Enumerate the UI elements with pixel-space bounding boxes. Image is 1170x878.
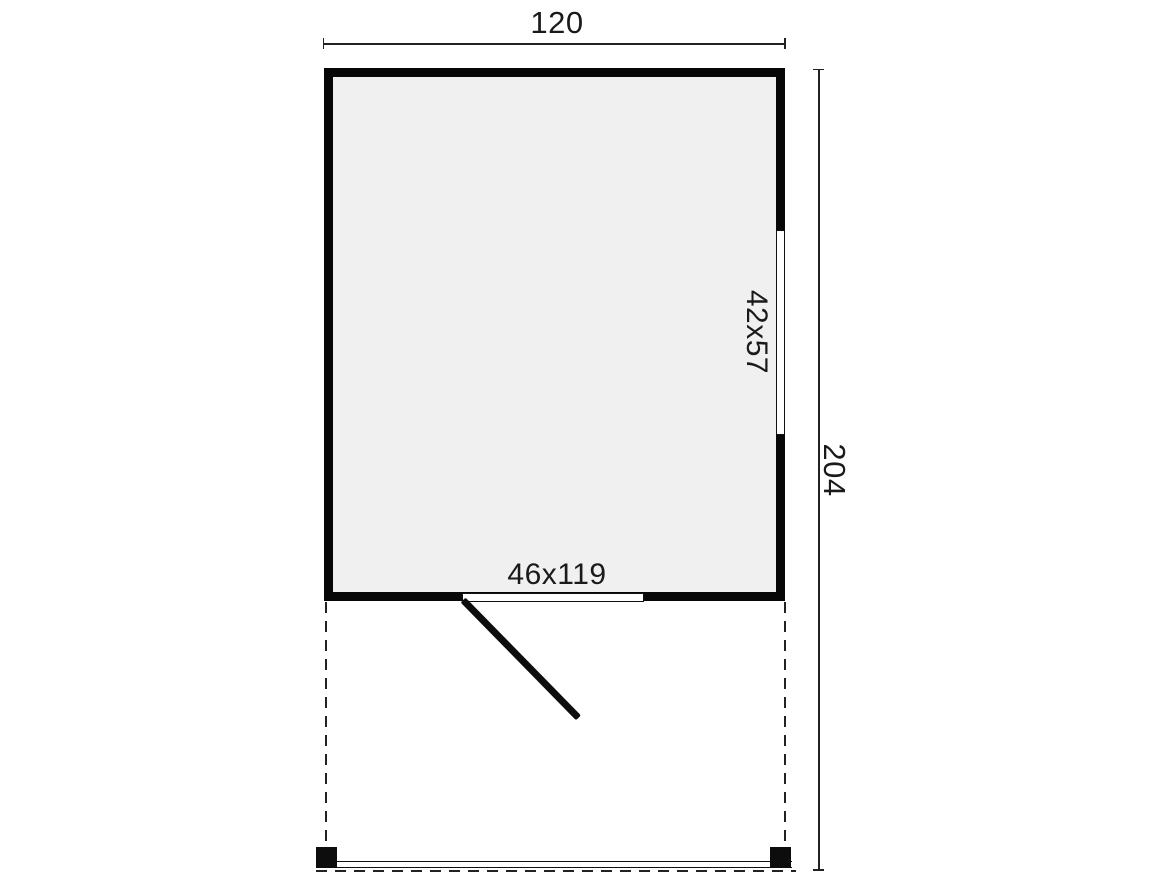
depth-dimension-label: 204 [816, 443, 852, 496]
door-opening [462, 593, 644, 603]
porch-post-left [316, 847, 337, 868]
width-dimension-label: 120 [530, 5, 583, 41]
door-swing-line [461, 598, 581, 721]
dimension-tick-right [784, 38, 786, 49]
dimension-tick-left [323, 38, 325, 49]
window [776, 230, 786, 435]
dimension-tick-bottom [813, 869, 824, 871]
porch-side-line-left [325, 602, 327, 848]
floor-plan-canvas: 120 204 42x57 46x119 [0, 0, 1170, 878]
width-dimension-line [323, 43, 785, 45]
porch-side-line-right [784, 602, 786, 848]
porch-post-right [770, 847, 791, 868]
porch-front-dashed-line [316, 870, 796, 872]
window-size-label: 42x57 [739, 290, 773, 374]
door-size-label: 46x119 [507, 558, 606, 592]
dimension-tick-top [813, 69, 824, 71]
porch-front-edge [326, 861, 792, 868]
room-outline [324, 68, 785, 601]
